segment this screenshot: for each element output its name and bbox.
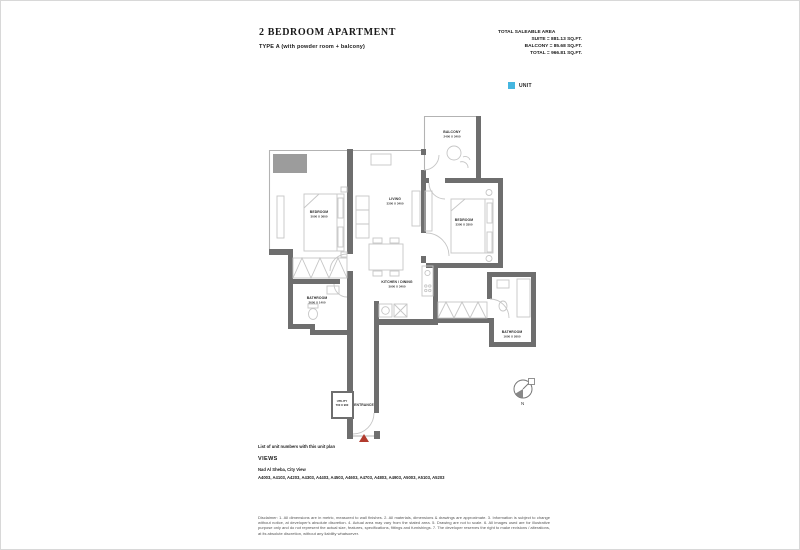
bedroom2-label: BEDROOM — [455, 218, 473, 222]
utility-dims: 700 X 900 — [336, 403, 349, 407]
north-compass-icon: N — [503, 373, 543, 413]
disclaimer-text: Disclaimer: 1. All dimensions are in met… — [258, 515, 550, 536]
area-suite: SUITE = 881.13 SQ.FT. — [498, 36, 582, 43]
area-total: TOTAL = 966.81 SQ.FT. — [498, 50, 582, 57]
door-arcs — [330, 155, 509, 434]
bedroom2-dims: 3300 X 3300 — [455, 223, 472, 227]
unit-numbers-note: List of unit numbers with this unit plan — [258, 444, 335, 449]
entrance-arrow-icon — [359, 434, 369, 442]
unit-legend-swatch — [508, 82, 515, 89]
unit-legend: UNIT — [508, 82, 532, 89]
living-dims: 3300 X 3400 — [386, 202, 403, 206]
entrance-label: ENTRANCE — [354, 403, 374, 407]
living-label: LIVING — [389, 197, 401, 201]
bedroom1-label: BEDROOM — [310, 210, 328, 214]
area-heading: TOTAL SALEABLE AREA — [498, 29, 582, 36]
area-balcony: BALCONY = 85.68 SQ.FT. — [498, 43, 582, 50]
bedroom1-dims: 3000 X 3600 — [310, 215, 327, 219]
type-subtitle: TYPE A (with powder room + balcony) — [259, 44, 365, 50]
views-description: Nad Al Sheba, City View — [258, 467, 306, 472]
views-heading: VIEWS — [258, 456, 278, 462]
page-title: 2 BEDROOM APARTMENT — [259, 27, 396, 38]
kitchen-label: KITCHEN / DINING — [381, 280, 413, 284]
bathroom1-label: BATHROOM — [307, 296, 328, 300]
unit-numbers-list: A4003, A4103, A4203, A4303, A4403, A4503… — [258, 475, 558, 480]
bathroom1-dims: 2600 X 1400 — [308, 301, 325, 305]
walls — [269, 116, 536, 439]
unit-legend-label: UNIT — [519, 83, 532, 89]
balcony-label: BALCONY — [443, 130, 461, 134]
kitchen-dims: 3900 X 3400 — [388, 285, 405, 289]
floor-plan-page: 2 BEDROOM APARTMENT TYPE A (with powder … — [0, 0, 800, 550]
bathroom2-label: BATHROOM — [502, 330, 523, 334]
bathroom2-dims: 1600 X 2600 — [503, 335, 520, 339]
saleable-area-summary: TOTAL SALEABLE AREA SUITE = 881.13 SQ.FT… — [498, 29, 582, 57]
compass-north-label: N — [521, 401, 524, 406]
balcony-dims: 2400 X 3400 — [443, 135, 460, 139]
